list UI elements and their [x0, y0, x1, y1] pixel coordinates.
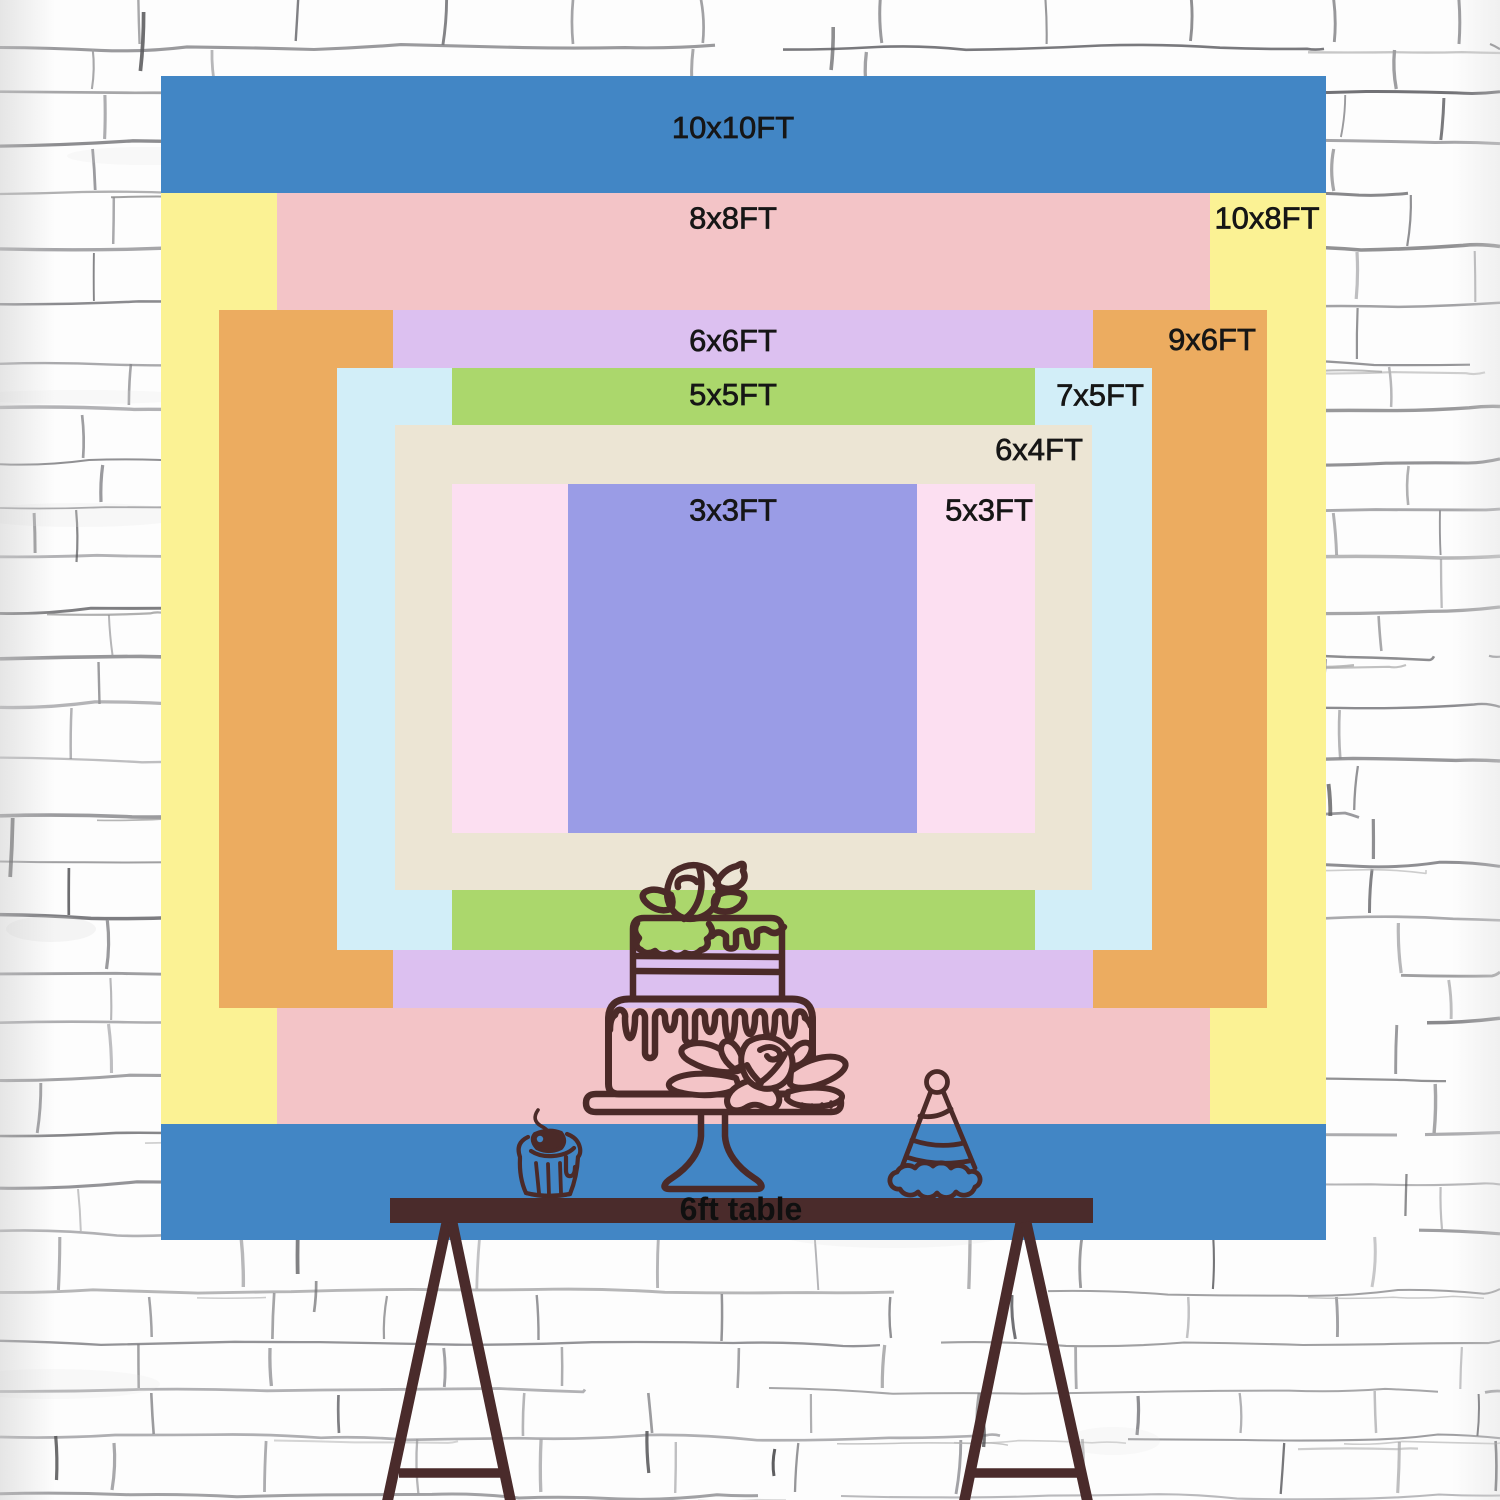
svg-text:3x3FT: 3x3FT: [689, 493, 777, 528]
svg-text:6x4FT: 6x4FT: [995, 432, 1083, 467]
svg-text:8x8FT: 8x8FT: [689, 201, 777, 236]
svg-text:5x5FT: 5x5FT: [689, 377, 777, 412]
svg-text:7x5FT: 7x5FT: [1056, 378, 1144, 413]
svg-text:6ft table: 6ft table: [680, 1191, 803, 1227]
svg-text:6x6FT: 6x6FT: [689, 323, 777, 358]
svg-text:10x8FT: 10x8FT: [1214, 201, 1319, 236]
svg-text:10x10FT: 10x10FT: [672, 110, 794, 145]
svg-text:5x3FT: 5x3FT: [945, 493, 1033, 528]
svg-text:9x6FT: 9x6FT: [1168, 322, 1256, 357]
